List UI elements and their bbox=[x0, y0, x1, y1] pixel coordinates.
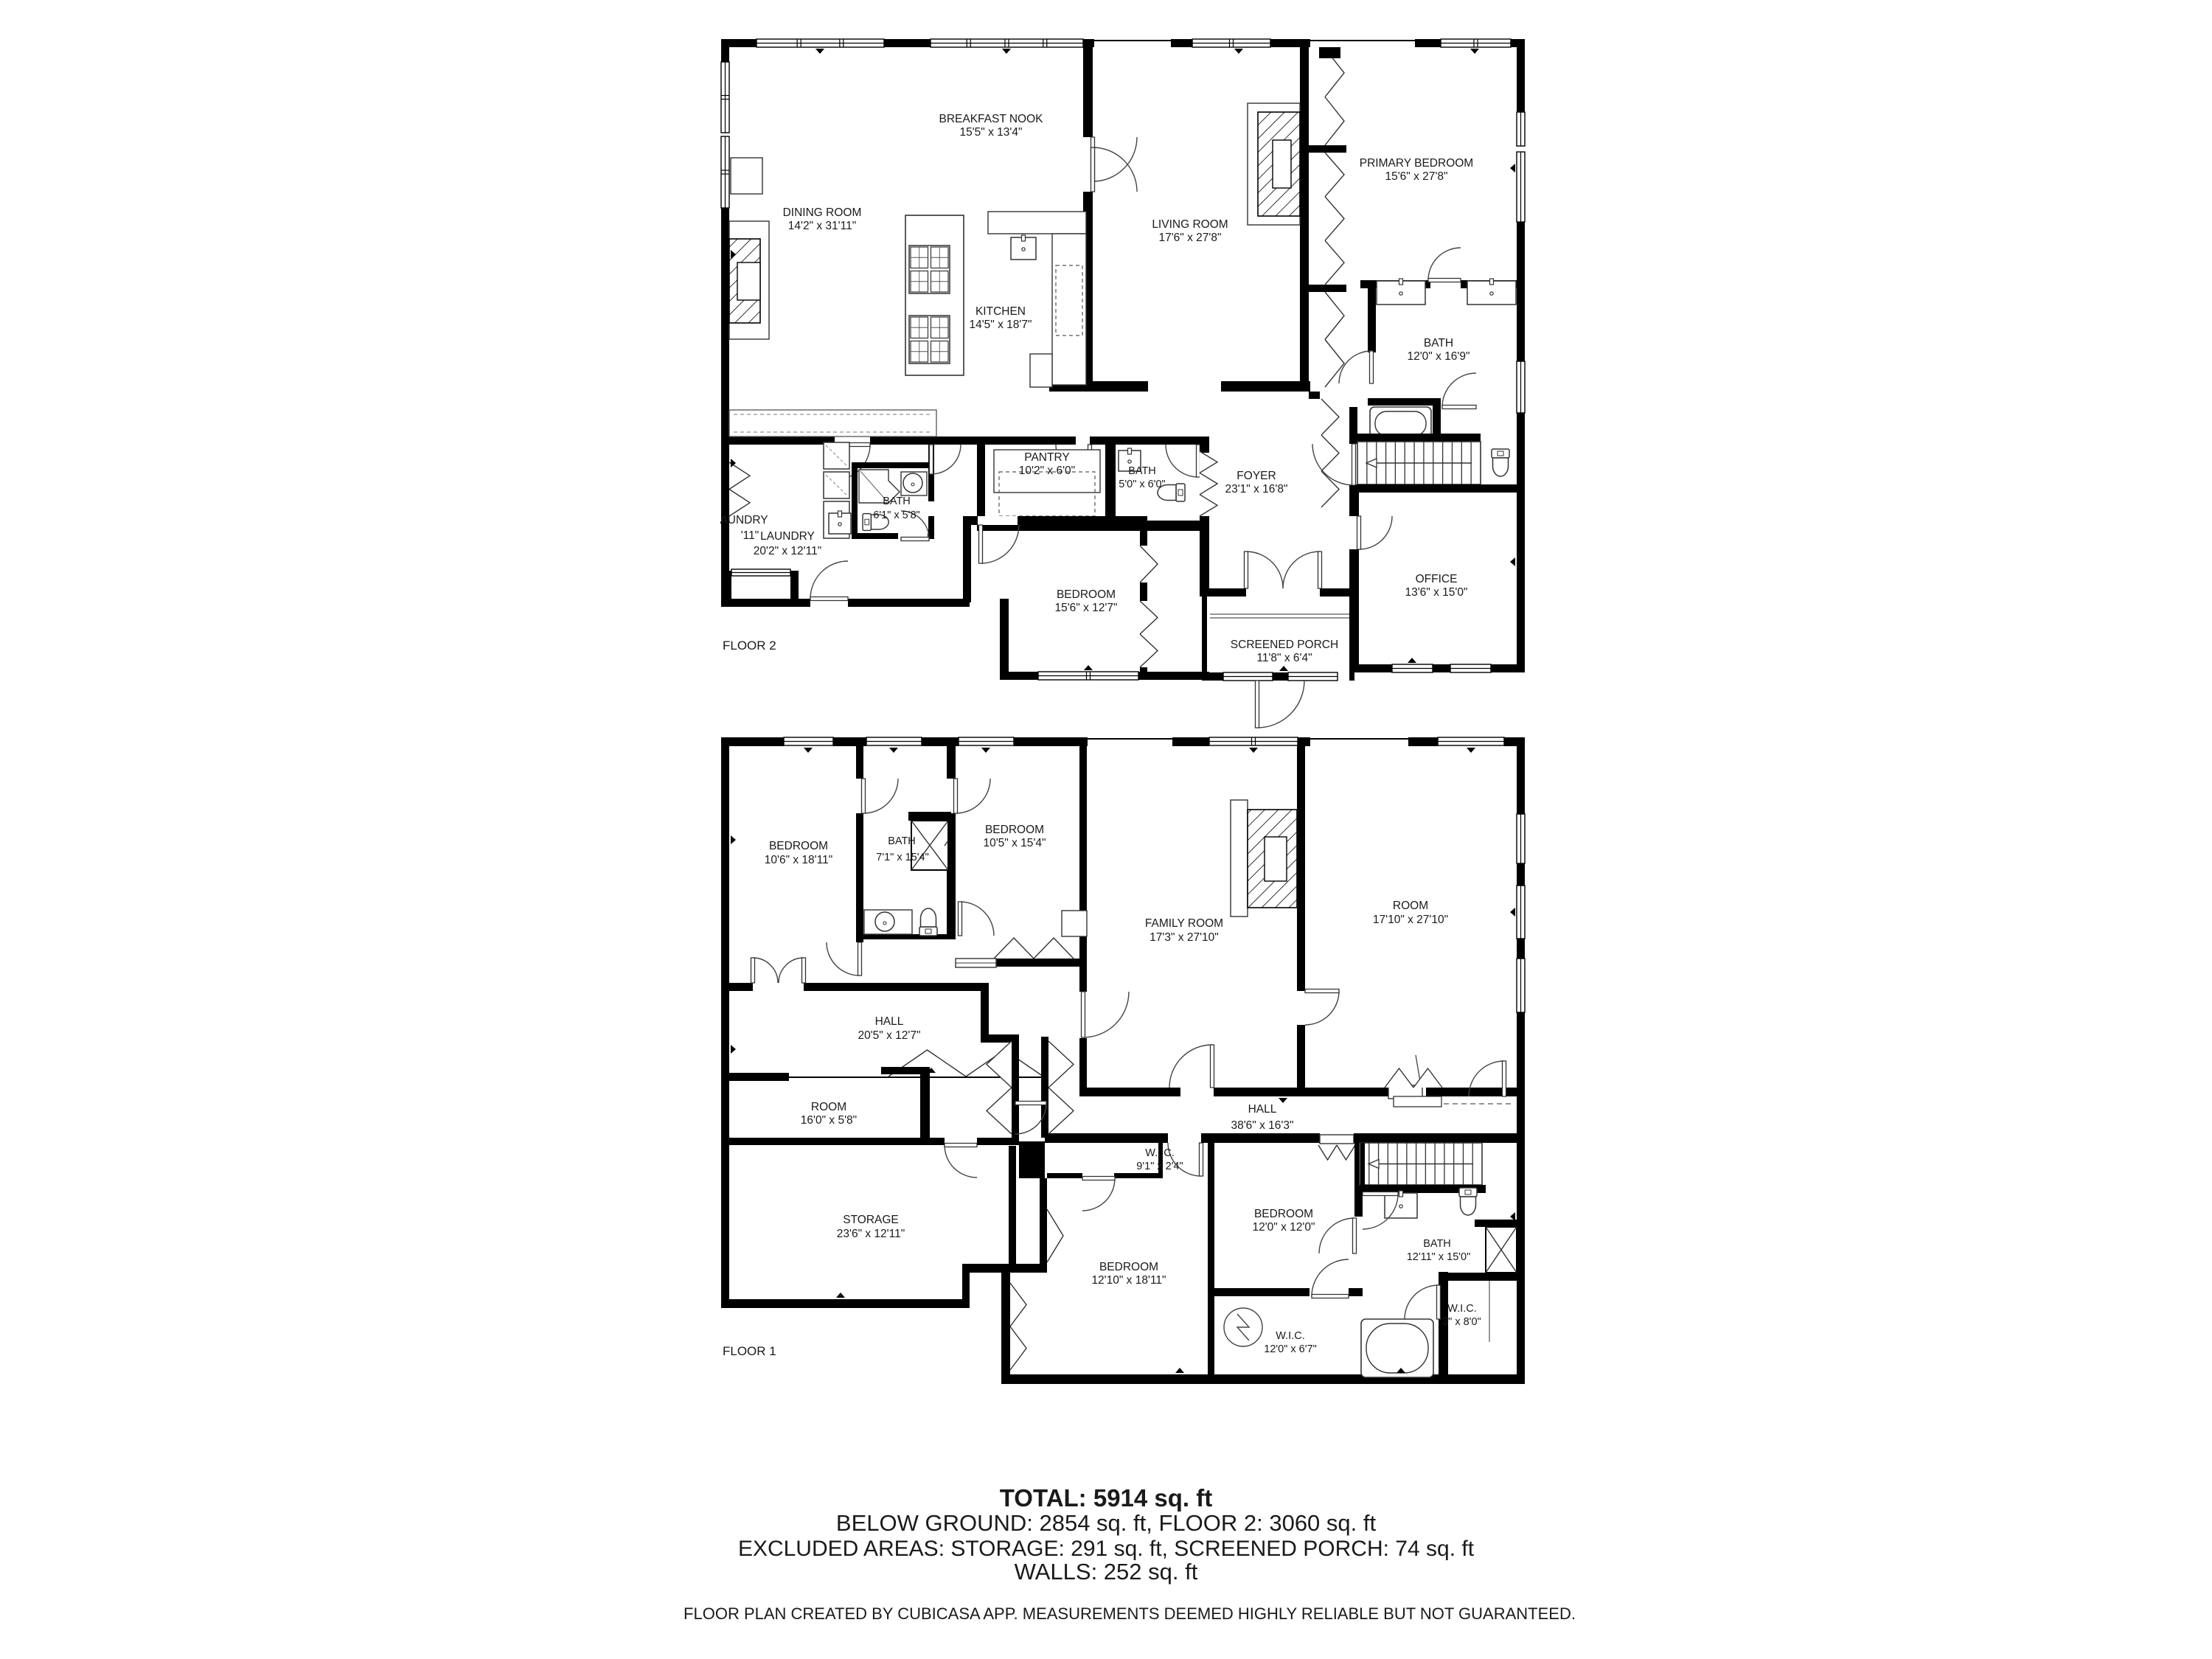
svg-text:11'8" x 6'4": 11'8" x 6'4" bbox=[1256, 652, 1312, 664]
svg-text:12'10" x 18'11": 12'10" x 18'11" bbox=[1091, 1274, 1166, 1287]
svg-text:17'10" x 27'10": 17'10" x 27'10" bbox=[1373, 914, 1448, 926]
svg-text:W.I.C.: W.I.C. bbox=[1276, 1330, 1304, 1342]
svg-text:DINING ROOM: DINING ROOM bbox=[783, 206, 862, 219]
svg-text:LAUNDRY: LAUNDRY bbox=[760, 530, 815, 543]
svg-text:13'6" x 15'0": 13'6" x 15'0" bbox=[1405, 586, 1467, 599]
svg-text:14'2" x 31'11": 14'2" x 31'11" bbox=[788, 220, 856, 232]
svg-text:SCREENED PORCH: SCREENED PORCH bbox=[1231, 639, 1338, 651]
svg-text:TOTAL: 5914 sq. ft: TOTAL: 5914 sq. ft bbox=[1000, 1484, 1213, 1512]
svg-text:W.I.C.: W.I.C. bbox=[1447, 1303, 1476, 1315]
svg-text:STORAGE: STORAGE bbox=[843, 1214, 899, 1226]
svg-text:HALL: HALL bbox=[1248, 1103, 1277, 1116]
svg-text:BATH: BATH bbox=[1424, 337, 1453, 349]
svg-text:BATH: BATH bbox=[1128, 465, 1156, 477]
svg-text:BREAKFAST NOOK: BREAKFAST NOOK bbox=[939, 113, 1044, 125]
svg-text:BEDROOM: BEDROOM bbox=[769, 840, 828, 852]
svg-text:20'5" x 12'7": 20'5" x 12'7" bbox=[858, 1029, 920, 1042]
svg-text:WALLS: 252 sq. ft: WALLS: 252 sq. ft bbox=[1015, 1559, 1198, 1585]
svg-text:10'2" x 6'0": 10'2" x 6'0" bbox=[1019, 465, 1075, 477]
svg-text:KITCHEN: KITCHEN bbox=[975, 305, 1026, 318]
svg-text:BEDROOM: BEDROOM bbox=[1057, 588, 1116, 601]
svg-text:FLOOR PLAN CREATED BY CUBICASA: FLOOR PLAN CREATED BY CUBICASA APP. MEAS… bbox=[684, 1604, 1576, 1623]
svg-text:12'11" x 15'0": 12'11" x 15'0" bbox=[1407, 1251, 1471, 1263]
svg-text:7'1" x 15'4": 7'1" x 15'4" bbox=[876, 852, 928, 863]
svg-text:BELOW GROUND: 2854 sq. ft, FLO: BELOW GROUND: 2854 sq. ft, FLOOR 2: 3060… bbox=[836, 1510, 1377, 1536]
svg-text:ROOM: ROOM bbox=[1393, 900, 1428, 912]
svg-text:'3" x 8'0": '3" x 8'0" bbox=[1440, 1316, 1481, 1328]
svg-text:AUNDRY: AUNDRY bbox=[720, 514, 768, 526]
svg-text:15'6" x 12'7": 15'6" x 12'7" bbox=[1054, 602, 1117, 614]
svg-text:12'0" x 16'9": 12'0" x 16'9" bbox=[1407, 350, 1470, 363]
svg-text:FOYER: FOYER bbox=[1237, 470, 1276, 482]
svg-text:23'1" x 16'8": 23'1" x 16'8" bbox=[1225, 483, 1287, 495]
svg-text:10'6" x 18'11": 10'6" x 18'11" bbox=[765, 854, 832, 866]
svg-text:5'0" x 6'0": 5'0" x 6'0" bbox=[1119, 479, 1165, 490]
svg-text:HALL: HALL bbox=[875, 1015, 904, 1028]
svg-text:9'1" x 2'4": 9'1" x 2'4" bbox=[1136, 1161, 1183, 1172]
svg-text:17'6" x 27'8": 17'6" x 27'8" bbox=[1158, 232, 1221, 244]
svg-text:15'5" x 13'4": 15'5" x 13'4" bbox=[959, 126, 1022, 139]
svg-text:38'6" x 16'3": 38'6" x 16'3" bbox=[1231, 1119, 1293, 1132]
svg-text:BATH: BATH bbox=[1423, 1238, 1451, 1250]
svg-text:14'5" x 18'7": 14'5" x 18'7" bbox=[969, 319, 1032, 331]
svg-text:ROOM: ROOM bbox=[811, 1101, 846, 1113]
svg-text:FLOOR 2: FLOOR 2 bbox=[723, 639, 776, 653]
svg-text:17'3" x 27'10": 17'3" x 27'10" bbox=[1150, 931, 1219, 944]
svg-text:BATH: BATH bbox=[883, 495, 911, 507]
svg-text:W.I.C.: W.I.C. bbox=[1145, 1147, 1174, 1159]
svg-text:OFFICE: OFFICE bbox=[1416, 573, 1458, 585]
svg-text:20'2" x 12'11": 20'2" x 12'11" bbox=[754, 545, 821, 557]
svg-text:FLOOR 1: FLOOR 1 bbox=[723, 1344, 776, 1358]
svg-text:PRIMARY BEDROOM: PRIMARY BEDROOM bbox=[1360, 157, 1473, 170]
svg-text:BEDROOM: BEDROOM bbox=[1099, 1261, 1158, 1273]
svg-text:12'0" x 12'0": 12'0" x 12'0" bbox=[1252, 1221, 1315, 1234]
svg-text:15'6" x 27'8": 15'6" x 27'8" bbox=[1385, 170, 1447, 183]
svg-text:'11": '11" bbox=[741, 529, 759, 542]
svg-text:BEDROOM: BEDROOM bbox=[985, 824, 1044, 836]
svg-text:PANTRY: PANTRY bbox=[1024, 451, 1069, 464]
svg-text:10'5" x 15'4": 10'5" x 15'4" bbox=[983, 837, 1046, 849]
svg-text:EXCLUDED AREAS: STORAGE: 291 s: EXCLUDED AREAS: STORAGE: 291 sq. ft, SCR… bbox=[738, 1537, 1475, 1561]
svg-text:LIVING ROOM: LIVING ROOM bbox=[1152, 218, 1228, 231]
svg-text:BATH: BATH bbox=[888, 835, 916, 847]
svg-text:6'1" x 5'8": 6'1" x 5'8" bbox=[873, 509, 919, 521]
svg-text:12'0" x 6'7": 12'0" x 6'7" bbox=[1264, 1343, 1316, 1355]
svg-text:16'0" x 5'8": 16'0" x 5'8" bbox=[801, 1114, 857, 1127]
svg-text:BEDROOM: BEDROOM bbox=[1254, 1208, 1313, 1220]
svg-text:23'6" x 12'11": 23'6" x 12'11" bbox=[837, 1228, 905, 1240]
svg-text:FAMILY ROOM: FAMILY ROOM bbox=[1145, 917, 1223, 930]
